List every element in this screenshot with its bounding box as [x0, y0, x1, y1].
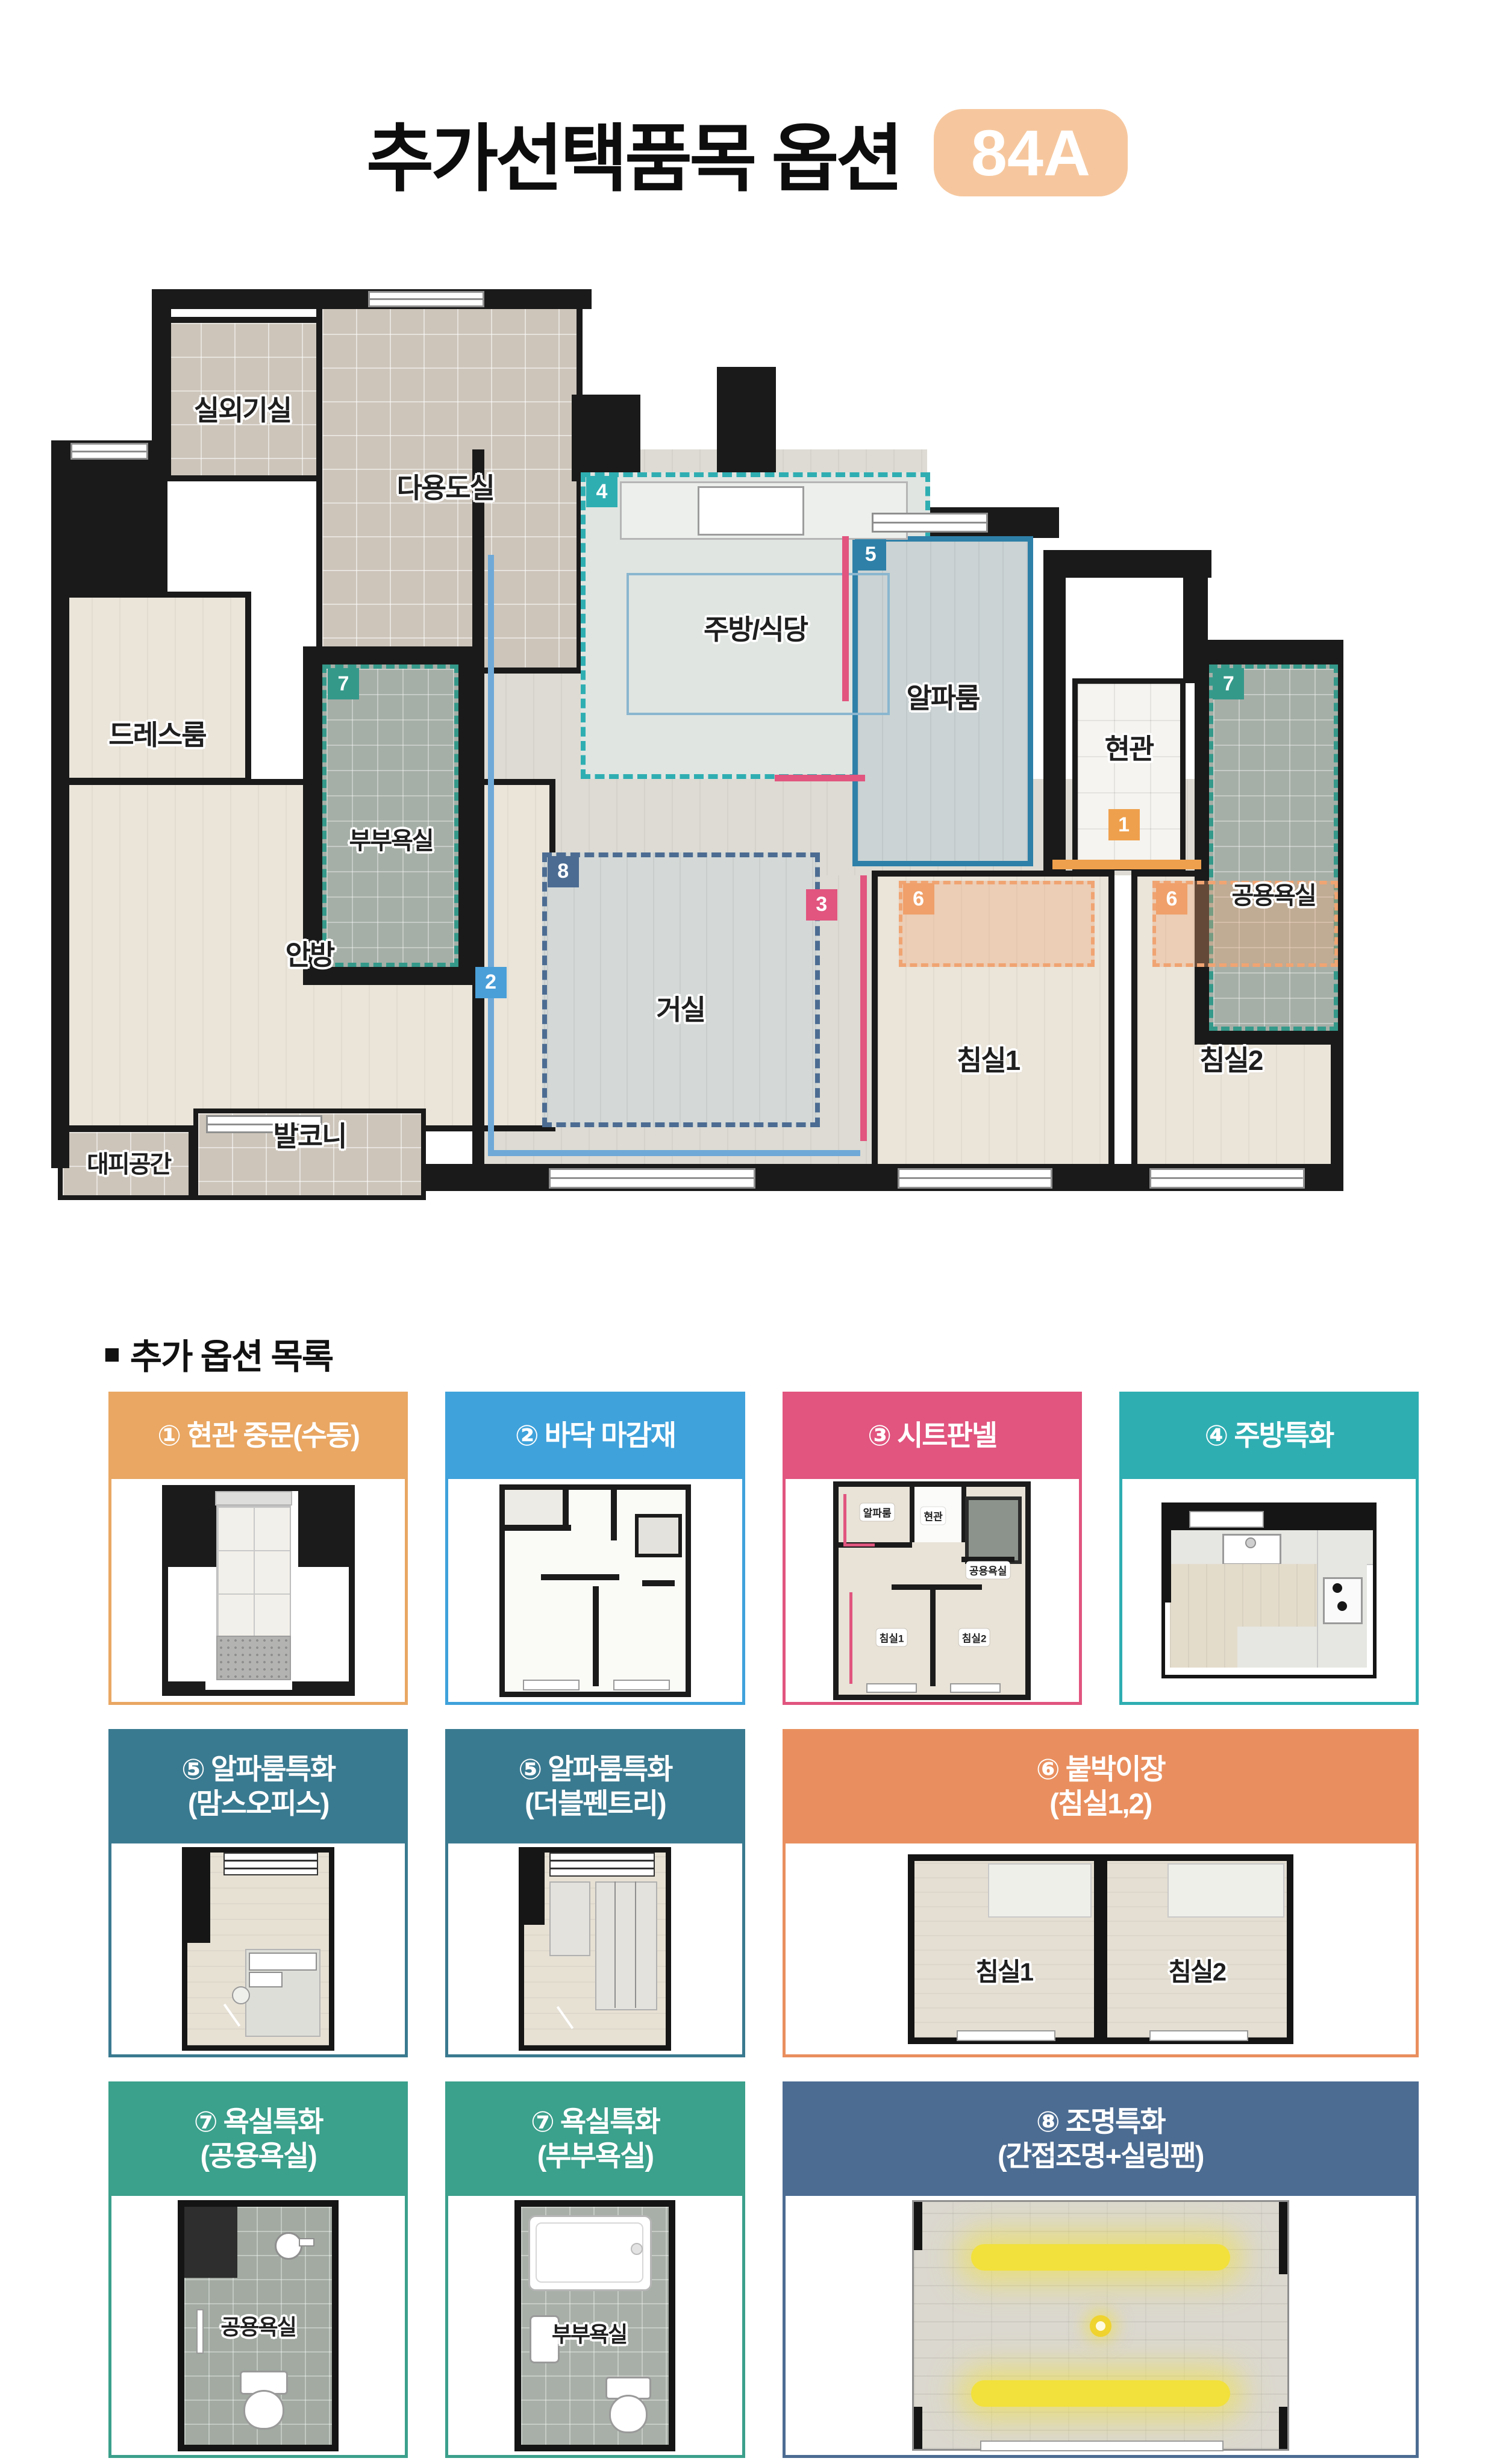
mini-room-label: 침실2	[959, 1628, 990, 1646]
option-number: ②	[515, 1419, 538, 1451]
card-header: ① 현관 중문(수동)	[108, 1392, 408, 1479]
entrance-door-line	[1052, 860, 1201, 869]
option-label: 욕실특화	[223, 2106, 323, 2137]
wall	[717, 367, 777, 481]
sheet-panel-line	[842, 536, 849, 701]
window	[898, 1168, 1052, 1188]
card-header: ⑦ 욕실특화 (공용욕실)	[108, 2081, 408, 2196]
card-header: ⑥ 붙박이장 (침실1,2)	[783, 1729, 1419, 1843]
wall	[1043, 550, 1065, 871]
option-label: 시트판넬	[897, 1419, 996, 1451]
option-card-10: ⑧ 조명특화 (간접조명+실링팬)	[783, 2081, 1419, 2458]
option-label: 바닥 마감재	[545, 1419, 675, 1451]
wall	[572, 395, 640, 481]
option-card-grid: ① 현관 중문(수동) ② 바닥 마감재	[108, 1392, 1419, 2458]
card-body: 공용욕실	[108, 2196, 408, 2458]
card-header: ② 바닥 마감재	[445, 1392, 745, 1479]
card-body: 알파룸 현관 공용욕실 침실1 침실2	[783, 1479, 1082, 1705]
option-number: ④	[1204, 1419, 1227, 1451]
floor-finish-line	[488, 555, 494, 1155]
option-card-2: ② 바닥 마감재	[445, 1392, 745, 1705]
thumb-kitchen-plan	[1161, 1502, 1377, 1678]
title-row: 추가선택품목 옵션 84A	[0, 99, 1494, 206]
option-card-1: ① 현관 중문(수동)	[108, 1392, 408, 1705]
option-card-7: ⑥ 붙박이장 (침실1,2) 침실1 침실2	[783, 1729, 1419, 2057]
room-label: 발코니	[273, 1115, 346, 1154]
window	[368, 291, 484, 307]
room-label: 현관	[1105, 727, 1154, 767]
room-label: 알파룸	[907, 677, 980, 716]
thumb-builtin-closets: 침실1 침실2	[908, 1854, 1293, 2044]
room-label: 드레스룸	[108, 713, 205, 753]
card-body	[108, 1843, 408, 2057]
marker-6b: 6	[1156, 883, 1187, 915]
window	[1149, 1168, 1304, 1188]
thumb-room-label: 부부욕실	[552, 2317, 627, 2348]
option-label: 욕실특화	[560, 2106, 660, 2137]
option-label: 붙박이장	[1066, 1753, 1165, 1785]
option-number: ⑤	[518, 1753, 541, 1785]
mini-room-label: 알파룸	[860, 1503, 895, 1521]
room-label: 부부욕실	[349, 821, 433, 856]
room-entrance	[1072, 678, 1186, 871]
marker-7a: 7	[328, 668, 359, 699]
card-header: ⑦ 욕실특화 (부부욕실)	[445, 2081, 745, 2196]
thumb-lighting	[912, 2200, 1289, 2451]
thumb-entrance-door	[162, 1485, 355, 1696]
thumb-master-bathroom: 부부욕실	[514, 2200, 675, 2451]
option-sublabel: (간접조명+실링팬)	[783, 2139, 1419, 2173]
marker-6a: 6	[903, 883, 934, 915]
thumb-room-label: 침실1	[975, 1952, 1033, 1989]
card-body	[1119, 1479, 1419, 1705]
card-body: 침실1 침실2	[783, 1843, 1419, 2057]
card-header: ③ 시트판넬	[783, 1392, 1082, 1479]
option-label: 알파룸특화	[211, 1753, 335, 1785]
section-title-text: 추가 옵션 목록	[130, 1328, 333, 1379]
marker-3: 3	[806, 889, 837, 921]
room-label: 실외기실	[194, 389, 291, 428]
marker-5: 5	[855, 539, 886, 571]
option-number: ⑦	[531, 2106, 554, 2137]
room-label: 거실	[656, 988, 705, 1028]
room-label: 안방	[286, 933, 334, 973]
option-sublabel: (공용욕실)	[108, 2139, 408, 2173]
poster-page: 추가선택품목 옵션 84A	[0, 0, 1494, 2464]
option-label: 현관 중문(수동)	[187, 1419, 359, 1451]
thumb-room-label: 침실2	[1168, 1952, 1225, 1989]
mini-room-label: 공용욕실	[966, 1561, 1010, 1578]
thumb-alpha-double-pantry	[519, 1847, 671, 2051]
option-label: 주방특화	[1234, 1419, 1333, 1451]
option-number: ③	[867, 1419, 890, 1451]
square-bullet-icon: ■	[104, 1337, 119, 1370]
option-number: ①	[157, 1419, 180, 1451]
indirect-light-bar	[971, 2244, 1230, 2271]
room-dressroom	[58, 592, 252, 784]
floor-finish-line	[488, 1150, 860, 1156]
thumb-alpha-moms-office	[182, 1847, 334, 2051]
marker-1: 1	[1108, 809, 1140, 840]
sheet-panel-line	[860, 875, 867, 1141]
room-label: 공용욕실	[1232, 876, 1316, 911]
option-label: 조명특화	[1066, 2106, 1165, 2137]
mini-room-label: 침실1	[877, 1628, 907, 1646]
option-card-5: ⑤ 알파룸특화 (맘스오피스)	[108, 1729, 408, 2057]
wall	[51, 564, 69, 1168]
room-label: 주방/식당	[704, 608, 807, 648]
kitchen-sink	[698, 486, 805, 536]
marker-4: 4	[586, 476, 617, 507]
unit-type-badge: 84A	[934, 109, 1128, 196]
room-label: 대피공간	[87, 1145, 170, 1180]
room-common-bath	[1209, 664, 1339, 1031]
option-card-4: ④ 주방특화	[1119, 1392, 1419, 1705]
room-label: 침실1	[957, 1039, 1019, 1078]
option-number: ⑥	[1036, 1753, 1059, 1785]
mini-room-label: 현관	[920, 1507, 945, 1524]
option-sublabel: (부부욕실)	[445, 2139, 745, 2173]
card-header: ⑤ 알파룸특화 (더블펜트리)	[445, 1729, 745, 1843]
option-card-8: ⑦ 욕실특화 (공용욕실) 공용욕실	[108, 2081, 408, 2458]
floor-plan: 1 2 3 4 5 6 6 7 7 8 실외기실 다용도실 드레스룸 부부욕실 …	[51, 289, 1343, 1205]
option-number: ⑦	[194, 2106, 217, 2137]
card-header: ⑤ 알파룸특화 (맘스오피스)	[108, 1729, 408, 1843]
option-card-9: ⑦ 욕실특화 (부부욕실) 부부욕실	[445, 2081, 745, 2458]
option-sublabel: (맘스오피스)	[108, 1786, 408, 1821]
thumb-room-label: 공용욕실	[220, 2310, 295, 2341]
card-body	[445, 1479, 745, 1705]
indirect-light-bar	[971, 2380, 1230, 2407]
option-number: ⑤	[181, 1753, 204, 1785]
card-body	[783, 2196, 1419, 2458]
option-label: 알파룸특화	[548, 1753, 672, 1785]
option-sublabel: (침실1,2)	[783, 1786, 1419, 1821]
window	[872, 513, 988, 533]
card-body	[445, 1843, 745, 2057]
room-label: 침실2	[1199, 1039, 1262, 1078]
sheet-panel-line	[775, 775, 865, 781]
ceiling-fan-icon	[1090, 2315, 1111, 2337]
card-body: 부부욕실	[445, 2196, 745, 2458]
marker-8: 8	[548, 856, 579, 887]
marker-7b: 7	[1213, 668, 1244, 699]
option-card-6: ⑤ 알파룸특화 (더블펜트리)	[445, 1729, 745, 2057]
option-number: ⑧	[1036, 2106, 1059, 2137]
option-sublabel: (더블펜트리)	[445, 1786, 745, 1821]
page-title: 추가선택품목 옵션	[366, 99, 901, 206]
thumb-floor-finish-plan	[499, 1484, 691, 1697]
thumb-common-bathroom: 공용욕실	[178, 2200, 339, 2451]
room-master-bath	[322, 664, 458, 967]
marker-2: 2	[475, 967, 507, 998]
card-body	[108, 1479, 408, 1705]
card-header: ④ 주방특화	[1119, 1392, 1419, 1479]
thumb-sheet-panel-plan: 알파룸 현관 공용욕실 침실1 침실2	[833, 1481, 1031, 1700]
room-label: 다용도실	[397, 466, 494, 506]
thumb-bedroom1: 침실1	[908, 1854, 1101, 2044]
section-title: ■ 추가 옵션 목록	[104, 1328, 333, 1379]
window	[70, 443, 148, 459]
thumb-bedroom2: 침실2	[1101, 1854, 1293, 2044]
window	[549, 1168, 755, 1188]
card-header: ⑧ 조명특화 (간접조명+실링팬)	[783, 2081, 1419, 2196]
option-card-3: ③ 시트판넬 알파룸 현관 공용욕실	[783, 1392, 1082, 1705]
